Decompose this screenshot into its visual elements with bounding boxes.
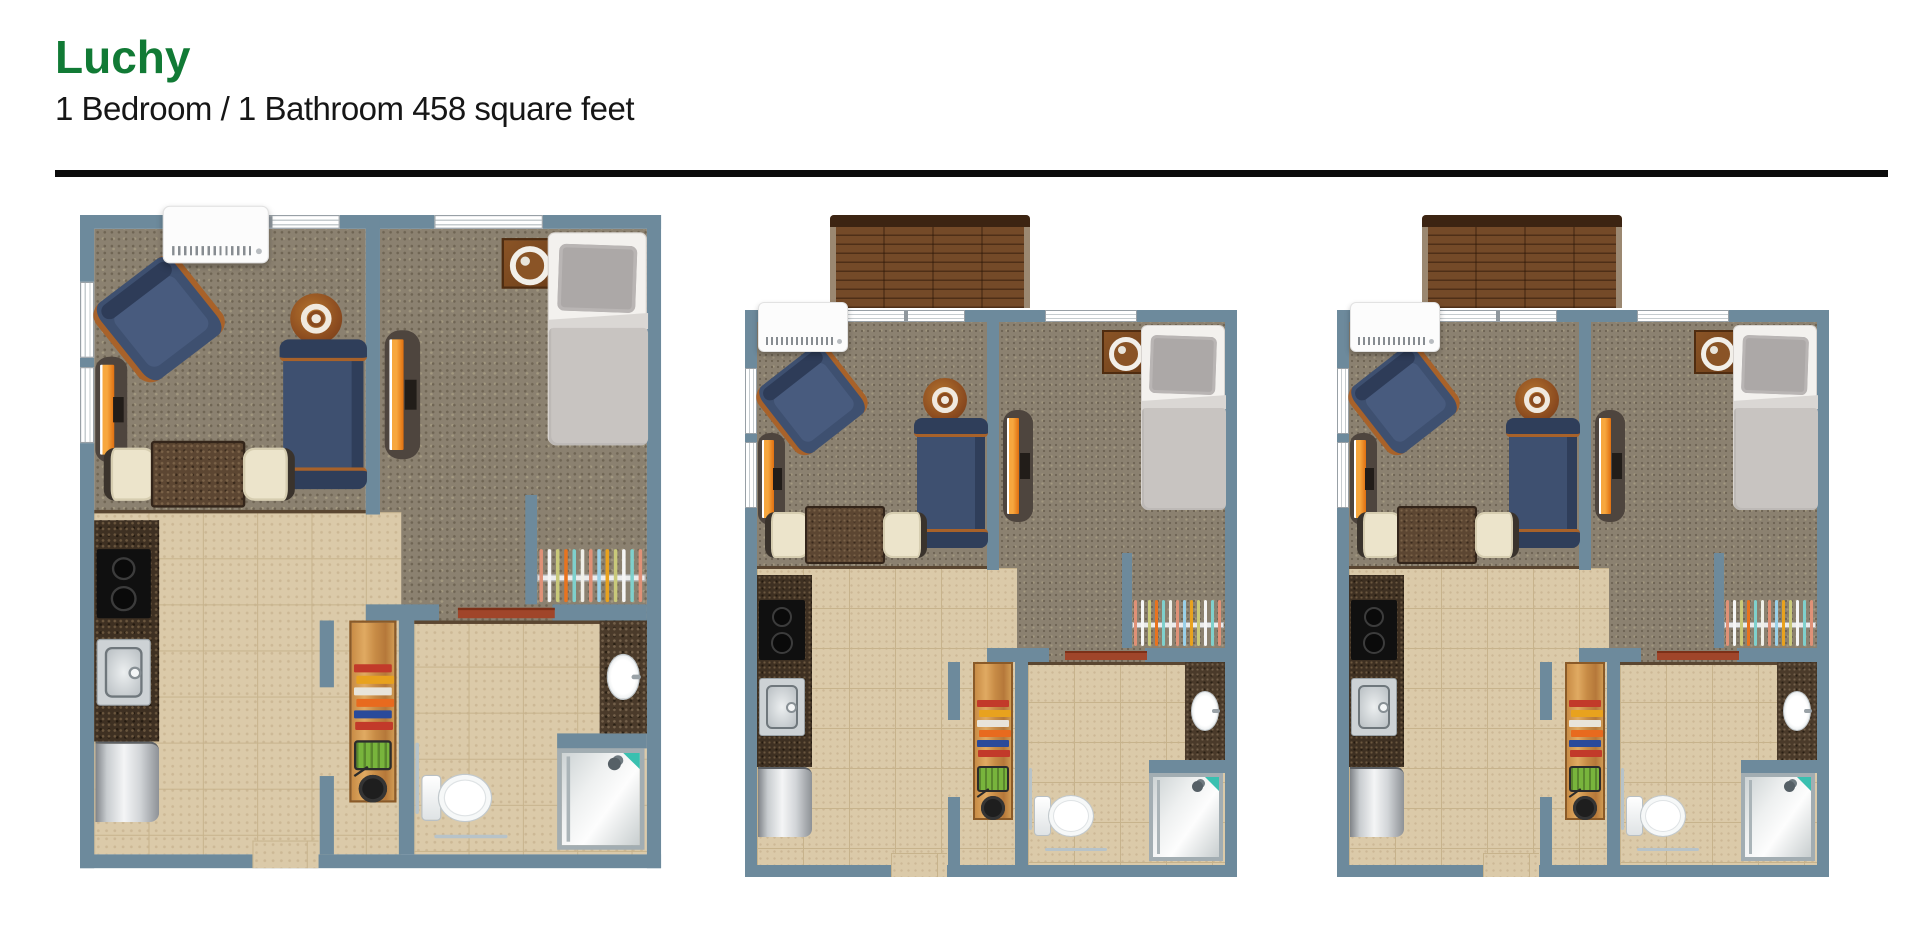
hanger [1134,600,1137,646]
grab-bar [434,835,507,838]
bathroom-wall [399,621,414,855]
deck [830,215,1030,308]
hanger [589,549,593,602]
wall [1817,310,1829,877]
kitchen-sink [759,678,805,736]
vanity-sink [1191,691,1219,731]
hanger [597,549,601,602]
stove [1351,600,1397,660]
hanger [1761,600,1764,646]
carpet-tile-threshold [94,510,366,513]
grab-bar [1621,768,1624,830]
nightstand-lamp [502,238,554,289]
dining-chair [1475,512,1519,558]
kitchen-sink [1351,678,1397,736]
ac-unit [163,206,269,264]
stove [759,600,805,660]
hanger [1148,600,1151,646]
grab-bar [1029,768,1032,830]
window [1337,368,1349,434]
pantry-item [979,710,1011,717]
tv-stand [1595,410,1625,522]
header-divider [55,170,1888,177]
hanger [1183,600,1186,646]
storage-basket [977,766,1009,792]
tv-screen [1599,418,1611,514]
pantry-item [1569,720,1601,727]
hanger [1803,600,1806,646]
closet-wall [1122,553,1132,648]
hanger [1810,600,1813,646]
hanger [1733,600,1736,646]
sliding-door-track [1657,651,1739,660]
tv-screen [100,365,114,455]
entry-doorway [891,853,947,877]
shower [1149,773,1223,861]
hanger [581,549,585,602]
pantry-item [1570,750,1602,757]
dining-chair [883,512,927,558]
pantry-shelf [973,662,1013,820]
shower-shelf [1797,777,1811,791]
hanger [1796,600,1799,646]
wall [1737,648,1817,662]
wall [987,310,999,570]
wall [1149,760,1225,773]
hanger [1190,600,1193,646]
pantry-item [1569,700,1601,707]
dining-chair [1357,512,1401,558]
window [80,367,94,443]
stove [97,549,151,618]
duvet [549,328,648,446]
dining-table [805,506,885,564]
hanger [1169,600,1172,646]
deck [1422,215,1622,308]
carpet-tile-threshold [757,566,987,569]
tv-screen [389,339,403,450]
pantry-item [977,720,1009,727]
bed [1733,325,1817,509]
pantry-item [977,700,1009,707]
wall [1225,310,1237,877]
window [1045,310,1137,322]
kitchen-sink [97,639,151,706]
hanger [1204,600,1207,646]
grab-bar [415,743,419,814]
hanger [1726,600,1729,646]
ac-unit [758,302,848,352]
toilet [438,774,492,822]
frying-pan [981,796,1005,820]
pantry-item [354,687,392,695]
pantry-item [1569,740,1601,747]
hanger [1218,600,1221,646]
hanger [1162,600,1165,646]
wall [1540,797,1552,865]
hanger [1176,600,1179,646]
closet-hangers [539,549,645,604]
tv-stand [385,330,420,459]
shower [557,748,644,849]
pantry-item [354,710,392,718]
wall [1337,865,1829,877]
wall [1579,310,1591,570]
grab-bar [1045,848,1107,851]
entry-doorway [252,841,318,869]
dining-chair [765,512,809,558]
refrigerator [95,741,159,822]
tv-stand [1003,410,1033,522]
pillow [557,244,637,313]
pantry-item [354,664,392,672]
tv-screen [1007,418,1019,514]
wall [552,604,646,620]
window [1337,442,1349,508]
pantry-item [979,730,1011,737]
hanger [1740,600,1743,646]
sliding-door-track [1065,651,1147,660]
wall [320,776,334,854]
hanger [564,549,568,602]
wall [320,621,334,688]
floor-plan-1 [80,215,661,868]
shower-shelf [1205,777,1219,791]
bathroom-wall [1015,662,1028,865]
hanger [630,549,634,602]
ac-unit [1350,302,1440,352]
frying-pan [359,775,387,803]
loveseat [1509,422,1577,544]
wall [647,215,661,868]
hanger [1789,600,1792,646]
hanger [1211,600,1214,646]
closet-wall [525,495,537,604]
frying-pan [1573,796,1597,820]
hanger [639,549,643,602]
pantry-shelf [349,621,396,803]
window [1637,310,1729,322]
window [434,215,543,229]
window [745,368,757,434]
window [745,442,757,508]
floor-plan-page: Luchy 1 Bedroom / 1 Bathroom 458 square … [0,0,1920,929]
wall [557,733,647,748]
entry-doorway [1483,853,1539,877]
hanger [539,549,543,602]
wall [987,648,1049,662]
bathroom-wall [1607,662,1620,865]
pantry-item [977,740,1009,747]
wall [948,797,960,865]
bed [548,232,647,444]
storage-basket [1569,766,1601,792]
shower-shelf [623,753,640,769]
wall [1540,662,1552,720]
toilet [1048,795,1094,837]
pillow [1741,335,1809,395]
hanger [1754,600,1757,646]
hanger [622,549,626,602]
duvet [1142,408,1226,510]
pantry-item [356,699,394,707]
floor-plan-3 [1337,310,1829,877]
hanger [1155,600,1158,646]
sliding-door-track [458,608,555,618]
wall [948,662,960,720]
storage-basket [354,740,392,770]
pantry-item [355,722,393,730]
dining-table [151,441,245,508]
nightstand-lamp [1102,330,1146,374]
vanity-sink [1783,691,1811,731]
loveseat [283,344,363,485]
nightstand-lamp [1694,330,1738,374]
hanger [1141,600,1144,646]
bed [1141,325,1225,509]
hanger [606,549,610,602]
pantry-item [1571,710,1603,717]
closet-hangers [1726,600,1816,648]
round-side-table [1515,378,1559,422]
window [80,282,94,358]
tv-screen [1354,440,1366,518]
closet-hangers [1134,600,1224,648]
wall [80,854,661,868]
window [1437,310,1557,322]
wall [1741,760,1817,773]
refrigerator [1350,767,1404,837]
dining-chair [104,448,156,501]
wall [745,865,1237,877]
wall [1145,648,1225,662]
hanger [1775,600,1778,646]
wall [366,215,380,515]
hanger [1782,600,1785,646]
hanger [1747,600,1750,646]
pantry-shelf [1565,662,1605,820]
window [845,310,965,322]
round-side-table [290,293,342,344]
shower [1741,773,1815,861]
pillow [1149,335,1217,395]
refrigerator [758,767,812,837]
loveseat [917,422,985,544]
pantry-item [356,676,394,684]
round-side-table [923,378,967,422]
grab-bar [1637,848,1699,851]
hanger [1768,600,1771,646]
duvet [1734,408,1818,510]
pantry-item [1571,730,1603,737]
vanity-sink [607,654,640,700]
hanger [556,549,560,602]
pantry-item [978,750,1010,757]
toilet [1640,795,1686,837]
hanger [572,549,576,602]
closet-wall [1714,553,1724,648]
page-subtitle: 1 Bedroom / 1 Bathroom 458 square feet [55,90,634,128]
dining-table [1397,506,1477,564]
carpet-tile-threshold [1349,566,1579,569]
page-title: Luchy [55,30,190,84]
hanger [614,549,618,602]
hanger [548,549,552,602]
tv-screen [762,440,774,518]
wall [366,604,439,620]
wall [1579,648,1641,662]
dining-chair [243,448,295,501]
hanger [1197,600,1200,646]
floor-plan-2 [745,310,1237,877]
